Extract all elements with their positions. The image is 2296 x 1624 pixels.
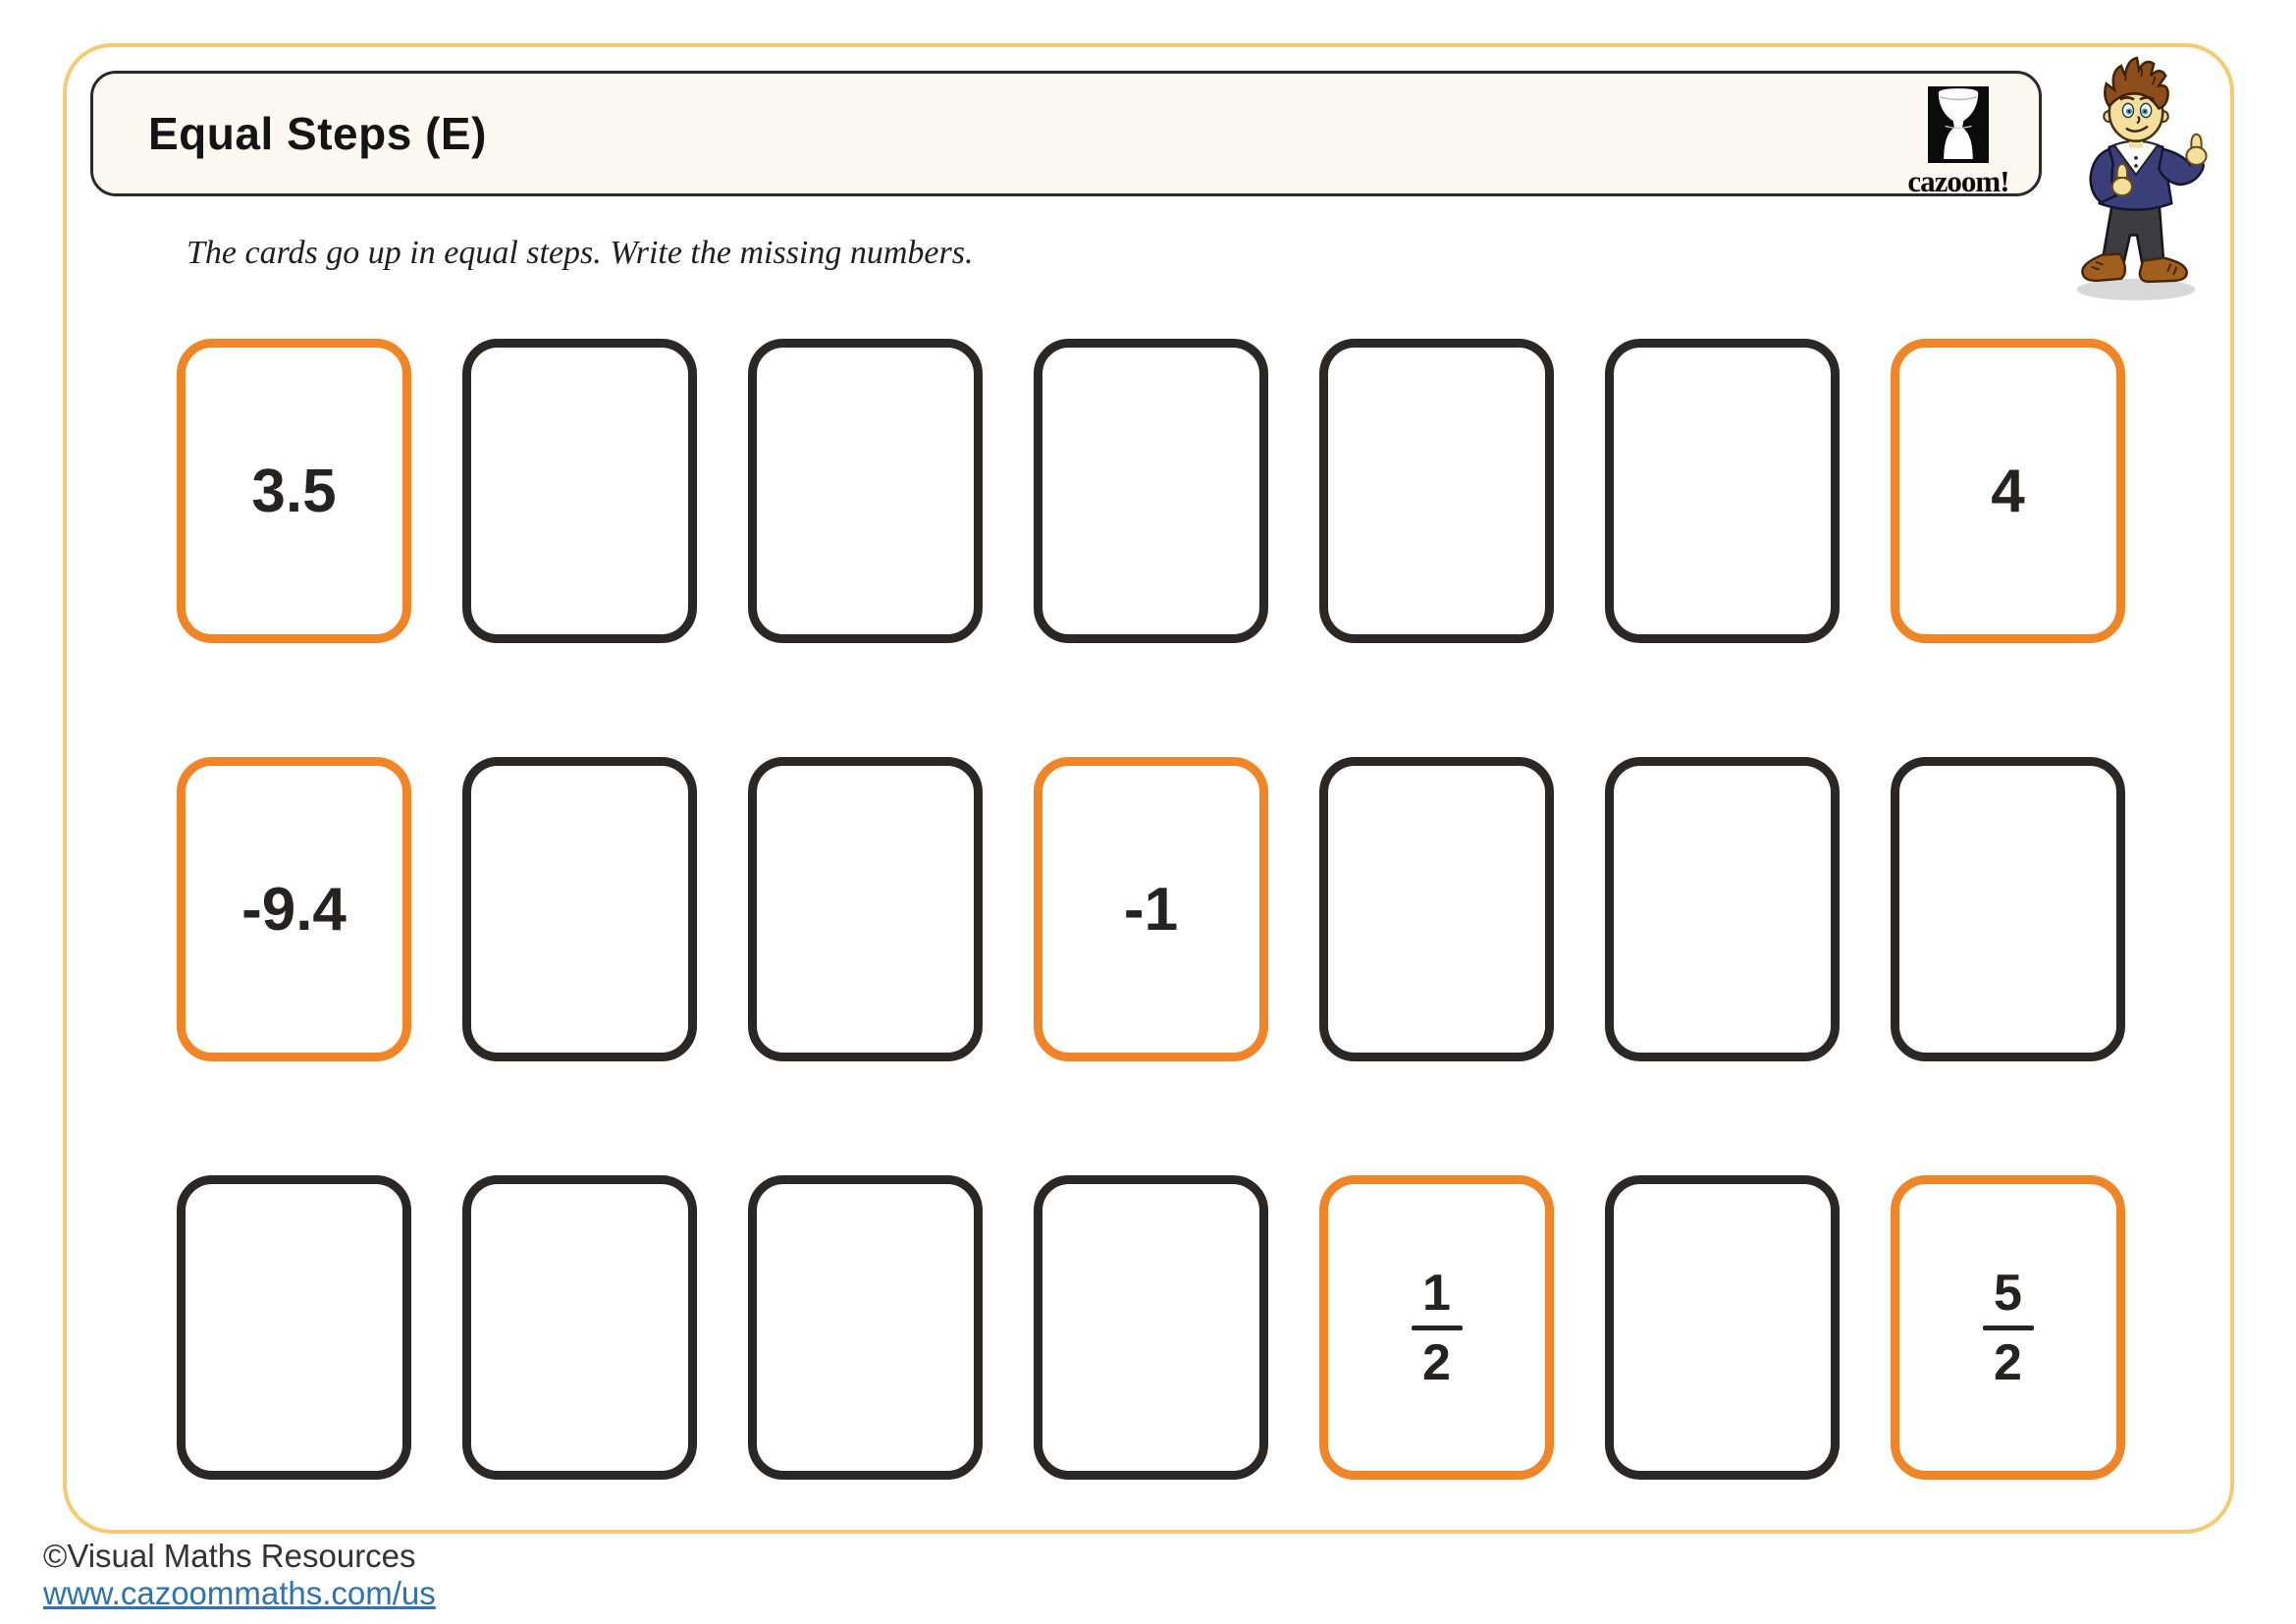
footer-link[interactable]: www.cazoommaths.com/us (43, 1575, 436, 1612)
answer-card-blank[interactable] (1605, 339, 1840, 643)
fraction-numerator: 1 (1422, 1268, 1451, 1319)
answer-card-blank[interactable] (1605, 757, 1840, 1061)
number-card: -9.4 (177, 757, 411, 1061)
card-number: -1 (1124, 875, 1178, 945)
answer-card-blank[interactable] (462, 757, 697, 1061)
answer-card-blank[interactable] (748, 339, 983, 643)
number-card: 3.5 (177, 339, 411, 643)
answer-card-blank[interactable] (1605, 1175, 1840, 1480)
cazoom-logo: cazoom! (1887, 86, 2030, 199)
fraction-bar (1412, 1326, 1463, 1330)
page-title: Equal Steps (E) (148, 107, 487, 160)
answer-card-blank[interactable] (1034, 1175, 1268, 1480)
answer-card-blank[interactable] (1319, 757, 1554, 1061)
footer-copyright: ©Visual Maths Resources (43, 1538, 436, 1575)
fraction-numerator: 5 (1994, 1268, 2022, 1319)
card-number: -9.4 (241, 875, 347, 945)
answer-card-blank[interactable] (1891, 757, 2125, 1061)
card-grid: 3.54-9.4-11252 (177, 339, 2125, 1594)
card-row: -9.4-1 (177, 757, 2125, 1061)
card-row: 1252 (177, 1175, 2125, 1480)
fraction-denominator: 2 (1422, 1337, 1451, 1388)
title-banner: Equal Steps (E) (90, 71, 2042, 196)
fraction-denominator: 2 (1994, 1337, 2022, 1388)
cazoom-logo-caption: cazoom! (1887, 164, 2030, 199)
fraction-bar (1983, 1326, 2034, 1330)
number-card: 4 (1891, 339, 2125, 643)
worksheet-page: { "header": { "title": "Equal Steps (E)"… (0, 0, 2296, 1624)
answer-card-blank[interactable] (748, 1175, 983, 1480)
number-card: -1 (1034, 757, 1268, 1061)
number-card: 52 (1891, 1175, 2125, 1480)
answer-card-blank[interactable] (462, 339, 697, 643)
instruction-text: The cards go up in equal steps. Write th… (187, 235, 974, 272)
number-card: 12 (1319, 1175, 1554, 1480)
card-fraction: 12 (1412, 1268, 1463, 1388)
mascot-boy-illustration (2052, 55, 2220, 302)
card-row: 3.54 (177, 339, 2125, 643)
card-number: 4 (1991, 457, 2024, 526)
card-fraction: 52 (1983, 1268, 2034, 1388)
answer-card-blank[interactable] (748, 757, 983, 1061)
cazoom-drum-icon (1928, 86, 1989, 163)
answer-card-blank[interactable] (1034, 339, 1268, 643)
card-number: 3.5 (251, 457, 336, 526)
footer: ©Visual Maths Resources www.cazoommaths.… (43, 1538, 436, 1612)
answer-card-blank[interactable] (462, 1175, 697, 1480)
answer-card-blank[interactable] (177, 1175, 411, 1480)
answer-card-blank[interactable] (1319, 339, 1554, 643)
